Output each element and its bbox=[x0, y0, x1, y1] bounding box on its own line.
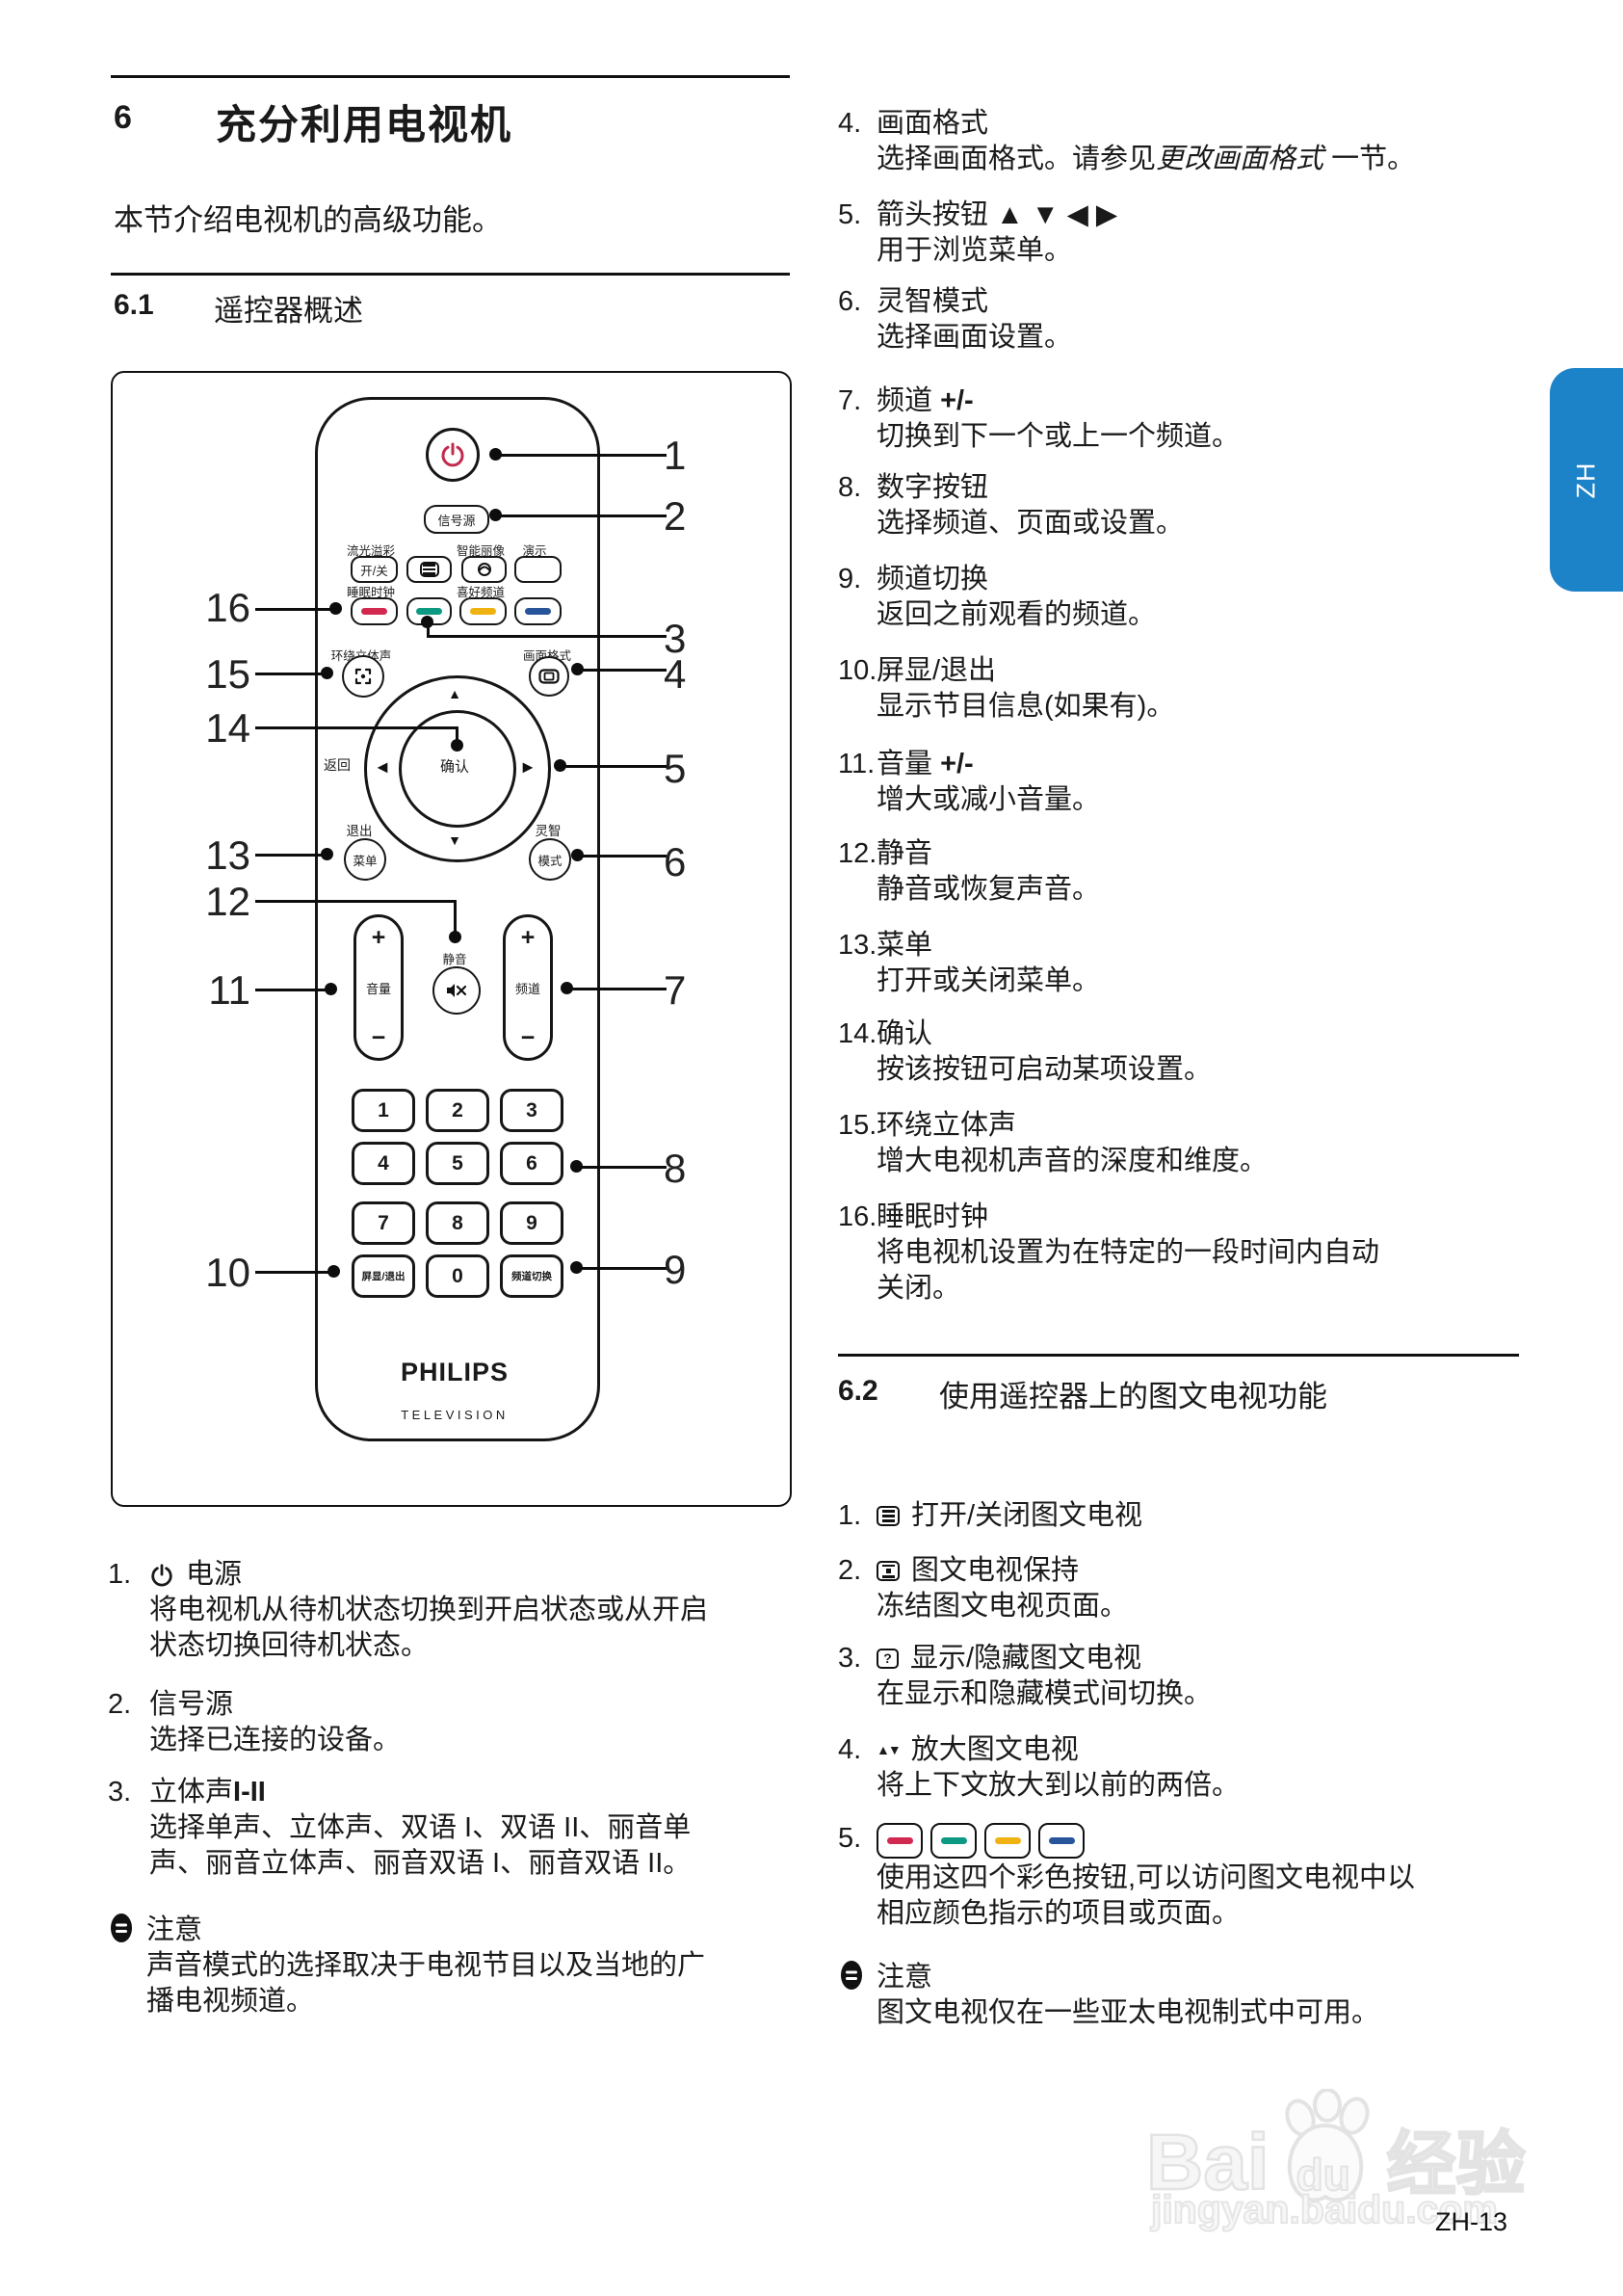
subsection-title: 遥控器概述 bbox=[214, 286, 363, 330]
list-item: 2. 信号源 选择已连接的设备。 bbox=[108, 1687, 801, 1758]
picture-format-icon bbox=[538, 669, 560, 684]
list-item: 13. 菜单 打开或关闭菜单。 bbox=[838, 928, 1531, 999]
reveal-icon: ? bbox=[877, 1649, 899, 1669]
section-rule bbox=[111, 273, 790, 276]
callout-number-11: 11 bbox=[197, 968, 250, 1013]
nav-right-icon: ▶ bbox=[523, 759, 534, 776]
callout-dot bbox=[325, 983, 337, 995]
item-number: 3. bbox=[108, 1775, 131, 1810]
item-number: 9. bbox=[838, 562, 861, 597]
callout-line bbox=[255, 726, 458, 729]
callout-line bbox=[496, 515, 667, 517]
item-heading: 放大图文电视 bbox=[911, 1732, 1079, 1768]
philips-logo: PHILIPS bbox=[315, 1358, 594, 1387]
digit-1: 1 bbox=[352, 1089, 415, 1132]
list-item: 12. 静音 静音或恢复声音。 bbox=[838, 836, 1531, 908]
callout-number-12: 12 bbox=[197, 880, 250, 924]
channel-up: + bbox=[521, 927, 536, 948]
teletext-icon bbox=[420, 562, 439, 577]
item-number: 12. bbox=[838, 836, 877, 872]
item-heading: 菜单 bbox=[877, 928, 1531, 963]
item-number: 5. bbox=[838, 1821, 861, 1857]
callout-line bbox=[255, 608, 336, 611]
back-label: 返回 bbox=[324, 755, 351, 775]
callout-number-6: 6 bbox=[664, 840, 686, 884]
callout-line bbox=[577, 1166, 667, 1169]
callout-line bbox=[255, 1271, 334, 1274]
digit-0: 0 bbox=[426, 1254, 489, 1298]
callout-line bbox=[578, 669, 667, 672]
item-heading: 电源 bbox=[186, 1557, 242, 1593]
mute-button bbox=[432, 966, 481, 1015]
volume-label: 音量 bbox=[366, 979, 391, 997]
brand-subtitle: TELEVISION bbox=[315, 1408, 594, 1422]
item-body: 冻结图文电视页面。 bbox=[877, 1589, 1531, 1624]
item-heading: 画面格式 bbox=[877, 106, 1531, 142]
note-block: 注意 图文电视仅在一些亚太电视制式中可用。 bbox=[841, 1960, 1534, 2031]
smart-picture-icon bbox=[475, 562, 494, 577]
item-heading: 图文电视保持 bbox=[911, 1553, 1079, 1589]
note-icon bbox=[841, 1961, 862, 1999]
list-item: 16. 睡眠时钟 将电视机设置为在特定的一段时间内自动 关闭。 bbox=[838, 1200, 1531, 1306]
callout-dot bbox=[321, 848, 333, 860]
item-heading: 数字按钮 bbox=[877, 470, 1531, 506]
item-body: 显示节目信息(如果有)。 bbox=[877, 689, 1531, 725]
digit-6: 6 bbox=[500, 1142, 563, 1185]
item-body: 选择已连接的设备。 bbox=[149, 1723, 801, 1758]
item-body: 选择画面设置。 bbox=[877, 320, 1531, 356]
smart-label: 灵智 bbox=[536, 820, 562, 839]
list-item: 11. 音量 +/- 增大或减小音量。 bbox=[838, 747, 1531, 818]
list-item: 14. 确认 按该按钮可启动某项设置。 bbox=[838, 1016, 1531, 1088]
callout-dot bbox=[489, 509, 502, 521]
page-number: ZH-13 bbox=[1435, 2207, 1507, 2237]
surround-button bbox=[342, 655, 384, 698]
exit-label: 退出 bbox=[347, 820, 373, 839]
mute-icon bbox=[445, 982, 468, 999]
digit-2: 2 bbox=[426, 1089, 489, 1132]
section-title: 充分利用电视机 bbox=[216, 92, 512, 151]
picture-format-button bbox=[529, 656, 569, 697]
item-number: 11. bbox=[838, 747, 875, 782]
callout-dot bbox=[489, 448, 502, 461]
item-heading: 静音 bbox=[877, 836, 1531, 872]
item-body: 按该按钮可启动某项设置。 bbox=[877, 1052, 1531, 1088]
digit-7: 7 bbox=[352, 1201, 415, 1245]
list-item: 8. 数字按钮 选择频道、页面或设置。 bbox=[838, 470, 1531, 541]
baidu-watermark: Bai du 经验 bbox=[1146, 2089, 1526, 2203]
item-heading: 环绕立体声 bbox=[877, 1108, 1531, 1144]
callout-line bbox=[255, 673, 327, 675]
item-heading: 音量 +/- bbox=[877, 747, 1531, 782]
ok-button: 确认 bbox=[440, 756, 469, 777]
callout-dot bbox=[571, 663, 584, 675]
item-heading: 打开/关闭图文电视 bbox=[911, 1498, 1142, 1534]
item-number: 13. bbox=[838, 928, 877, 963]
callout-number-15: 15 bbox=[197, 652, 250, 697]
callout-number-2: 2 bbox=[664, 494, 686, 539]
callout-dot bbox=[449, 931, 461, 943]
language-tab: ZH bbox=[1550, 368, 1623, 592]
callout-dot bbox=[571, 849, 584, 861]
callout-dot bbox=[561, 982, 573, 994]
yellow-button bbox=[459, 597, 507, 625]
item-number: 14. bbox=[838, 1016, 877, 1052]
channel-rocker: + 频道 − bbox=[503, 914, 553, 1061]
digit-9: 9 bbox=[500, 1201, 563, 1245]
item-heading: 确认 bbox=[877, 1016, 1531, 1052]
callout-line bbox=[255, 900, 456, 903]
nav-left-icon: ◀ bbox=[378, 759, 388, 776]
item-number: 8. bbox=[838, 470, 861, 506]
callout-line bbox=[255, 989, 331, 991]
callout-number-16: 16 bbox=[197, 586, 250, 630]
nav-down-icon: ▼ bbox=[448, 832, 461, 848]
callout-line bbox=[427, 635, 667, 638]
red-button bbox=[877, 1823, 923, 1859]
item-number: 7. bbox=[838, 383, 861, 419]
callout-line bbox=[578, 855, 667, 858]
item-heading: 立体声I-II bbox=[149, 1775, 801, 1810]
digit-5: 5 bbox=[426, 1142, 489, 1185]
surround-icon bbox=[353, 667, 373, 686]
list-item: 1. 电源 将电视机从待机状态切换到开启状态或从开启 状态切换回待机状态。 bbox=[108, 1557, 801, 1664]
teletext-hold-icon bbox=[877, 1561, 900, 1581]
item-body: 切换到下一个或上一个频道。 bbox=[877, 419, 1531, 455]
item-number: 5. bbox=[838, 198, 861, 233]
callout-number-7: 7 bbox=[664, 968, 686, 1013]
list-item: 9. 频道切换 返回之前观看的频道。 bbox=[838, 562, 1531, 633]
note-body: 图文电视仅在一些亚太电视制式中可用。 bbox=[877, 1995, 1534, 2031]
list-item: 7. 频道 +/- 切换到下一个或上一个频道。 bbox=[838, 383, 1531, 455]
note-title: 注意 bbox=[877, 1960, 1534, 1995]
source-button: 信号源 bbox=[424, 505, 489, 534]
note-block: 注意 声音模式的选择取决于电视节目以及当地的广 播电视频道。 bbox=[111, 1913, 804, 2019]
section-rule bbox=[838, 1354, 1519, 1357]
ambilight-button: 开/关 bbox=[351, 556, 398, 583]
item-body: 选择频道、页面或设置。 bbox=[877, 506, 1531, 541]
item-body: 打开或关闭菜单。 bbox=[877, 963, 1531, 999]
remote-diagram: 信号源 流光溢彩 智能丽像 演示 开/关 睡眠时钟 喜好频道 环绕立体声 bbox=[111, 371, 792, 1507]
item-body: 将电视机设置为在特定的一段时间内自动 关闭。 bbox=[877, 1235, 1531, 1306]
callout-number-9: 9 bbox=[664, 1248, 686, 1292]
language-tab-label: ZH bbox=[1572, 462, 1602, 498]
item-heading: 显示/隐藏图文电视 bbox=[910, 1641, 1141, 1676]
callout-number-4: 4 bbox=[664, 652, 686, 697]
mute-label: 静音 bbox=[442, 949, 466, 967]
channel-swap-button: 频道切换 bbox=[500, 1254, 563, 1298]
blue-button bbox=[1038, 1823, 1085, 1859]
item-body: 将上下文放大到以前的两倍。 bbox=[877, 1768, 1531, 1804]
callout-line bbox=[255, 854, 327, 857]
note-title: 注意 bbox=[146, 1913, 804, 1948]
list-item: 3. ? 显示/隐藏图文电视 在显示和隐藏模式间切换。 bbox=[838, 1641, 1531, 1712]
item-body: 选择画面格式。请参见更改画面格式 一节。 bbox=[877, 142, 1531, 177]
item-heading: 信号源 bbox=[149, 1687, 801, 1723]
section-rule bbox=[111, 75, 790, 78]
blue-button bbox=[514, 597, 562, 625]
callout-line bbox=[561, 765, 667, 768]
item-heading: 灵智模式 bbox=[877, 284, 1531, 320]
item-body: 静音或恢复声音。 bbox=[877, 872, 1531, 908]
osd-exit-button: 屏显/退出 bbox=[352, 1254, 415, 1298]
callout-line bbox=[567, 988, 667, 990]
teletext-icon bbox=[877, 1506, 900, 1526]
subsection-number: 6.2 bbox=[838, 1375, 878, 1408]
volume-up: + bbox=[372, 927, 386, 948]
item-number: 15. bbox=[838, 1108, 877, 1144]
callout-line bbox=[496, 454, 667, 457]
digit-4: 4 bbox=[352, 1142, 415, 1185]
callout-number-8: 8 bbox=[664, 1147, 686, 1191]
green-button bbox=[930, 1823, 977, 1859]
callout-number-13: 13 bbox=[197, 833, 250, 878]
channel-down: − bbox=[521, 1027, 536, 1048]
item-heading: 箭头按钮 ▲ ▼ ◀ ▶ bbox=[877, 198, 1531, 233]
power-icon bbox=[149, 1563, 174, 1588]
item-number: 4. bbox=[838, 106, 861, 142]
callout-number-10: 10 bbox=[197, 1251, 250, 1295]
item-heading: 频道切换 bbox=[877, 562, 1531, 597]
list-item: 2. 图文电视保持 冻结图文电视页面。 bbox=[838, 1553, 1531, 1624]
smart-picture-button bbox=[461, 556, 507, 583]
item-number: 2. bbox=[838, 1553, 861, 1589]
callout-number-14: 14 bbox=[197, 706, 250, 751]
manual-page: 6 充分利用电视机 本节介绍电视机的高级功能。 6.1 遥控器概述 信号源 流光… bbox=[0, 0, 1623, 2296]
callout-dot bbox=[421, 616, 433, 628]
item-heading: 频道 +/- bbox=[877, 383, 1531, 419]
section-number: 6 bbox=[114, 99, 132, 137]
item-heading: 屏显/退出 bbox=[877, 653, 1531, 689]
callout-dot bbox=[570, 1160, 583, 1173]
item-number: 10. bbox=[838, 653, 877, 689]
callout-dot bbox=[329, 602, 342, 615]
nav-up-icon: ▲ bbox=[448, 686, 461, 701]
power-button bbox=[426, 428, 480, 482]
callout-line bbox=[577, 1267, 667, 1270]
callout-dot bbox=[570, 1261, 583, 1274]
item-number: 1. bbox=[838, 1498, 861, 1534]
color-buttons-row bbox=[877, 1821, 1531, 1861]
note-body: 声音模式的选择取决于电视节目以及当地的广 播电视频道。 bbox=[146, 1948, 804, 2019]
item-body: 增大电视机声音的深度和维度。 bbox=[877, 1144, 1531, 1179]
teletext-button bbox=[406, 556, 452, 583]
list-item: 15. 环绕立体声 增大电视机声音的深度和维度。 bbox=[838, 1108, 1531, 1179]
menu-button: 菜单 bbox=[344, 838, 386, 881]
mode-button: 模式 bbox=[529, 838, 571, 881]
list-item: 4. ▲▼ 放大图文电视 将上下文放大到以前的两倍。 bbox=[838, 1732, 1531, 1804]
item-body: 增大或减小音量。 bbox=[877, 782, 1531, 818]
digit-3: 3 bbox=[500, 1089, 563, 1132]
yellow-button bbox=[984, 1823, 1031, 1859]
item-number: 6. bbox=[838, 284, 861, 320]
item-body: 使用这四个彩色按钮,可以访问图文电视中以 相应颜色指示的项目或页面。 bbox=[877, 1861, 1531, 1932]
callout-number-5: 5 bbox=[664, 747, 686, 791]
callout-dot bbox=[451, 739, 463, 752]
list-item: 1. 打开/关闭图文电视 bbox=[838, 1498, 1531, 1534]
list-item: 3. 立体声I-II 选择单声、立体声、双语 I、双语 II、丽音单 声、丽音立… bbox=[108, 1775, 801, 1882]
item-number: 2. bbox=[108, 1687, 131, 1723]
note-icon bbox=[111, 1913, 132, 1952]
power-icon bbox=[439, 441, 466, 468]
list-item: 4. 画面格式 选择画面格式。请参见更改画面格式 一节。 bbox=[838, 106, 1531, 177]
subsection-number: 6.1 bbox=[114, 289, 154, 322]
item-body: 选择单声、立体声、双语 I、双语 II、丽音单 声、丽音立体声、丽音双语 I、丽… bbox=[149, 1810, 801, 1882]
digit-8: 8 bbox=[426, 1201, 489, 1245]
subsection-title: 使用遥控器上的图文电视功能 bbox=[939, 1372, 1327, 1415]
volume-down: − bbox=[372, 1027, 386, 1048]
volume-rocker: + 音量 − bbox=[353, 914, 404, 1061]
item-body: 用于浏览菜单。 bbox=[877, 233, 1531, 269]
list-item: 10. 屏显/退出 显示节目信息(如果有)。 bbox=[838, 653, 1531, 725]
demo-button bbox=[514, 556, 562, 583]
item-number: 16. bbox=[838, 1200, 877, 1235]
item-body: 将电视机从待机状态切换到开启状态或从开启 状态切换回待机状态。 bbox=[149, 1593, 801, 1664]
channel-label: 频道 bbox=[515, 979, 540, 997]
list-item: 5. 使用这四个彩色按钮,可以访问图文电视中以 相应颜色指示的项目或页面。 bbox=[838, 1821, 1531, 1932]
callout-dot bbox=[327, 1265, 340, 1278]
item-heading: 睡眠时钟 bbox=[877, 1200, 1531, 1235]
list-item: 6. 灵智模式 选择画面设置。 bbox=[838, 284, 1531, 356]
list-item: 5. 箭头按钮 ▲ ▼ ◀ ▶ 用于浏览菜单。 bbox=[838, 198, 1531, 269]
red-button bbox=[351, 597, 398, 625]
section-intro: 本节介绍电视机的高级功能。 bbox=[114, 196, 502, 239]
item-number: 3. bbox=[838, 1641, 861, 1676]
callout-dot bbox=[321, 667, 333, 679]
item-body: 返回之前观看的频道。 bbox=[877, 597, 1531, 633]
callout-number-1: 1 bbox=[664, 434, 686, 478]
item-body: 在显示和隐藏模式间切换。 bbox=[877, 1676, 1531, 1712]
zoom-updown-icon: ▲▼ bbox=[877, 1732, 900, 1768]
item-number: 1. bbox=[108, 1557, 131, 1593]
callout-dot bbox=[554, 759, 566, 772]
item-number: 4. bbox=[838, 1732, 861, 1768]
